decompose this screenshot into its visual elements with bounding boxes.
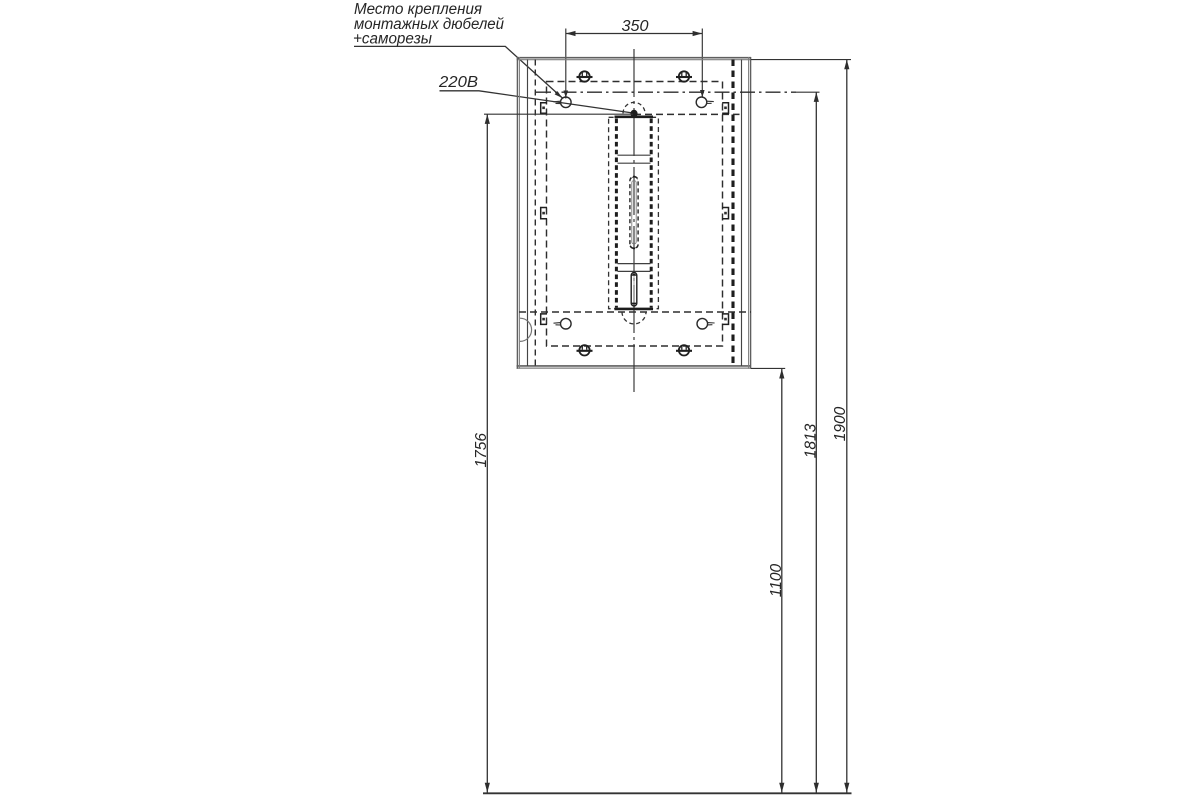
svg-text:350: 350	[622, 18, 649, 35]
svg-text:+саморезы: +саморезы	[353, 31, 433, 48]
svg-text:1100: 1100	[768, 563, 785, 597]
svg-text:1756: 1756	[473, 433, 490, 468]
svg-text:1813: 1813	[803, 423, 820, 458]
svg-text:1900: 1900	[832, 406, 849, 441]
svg-text:220В: 220В	[438, 74, 478, 91]
